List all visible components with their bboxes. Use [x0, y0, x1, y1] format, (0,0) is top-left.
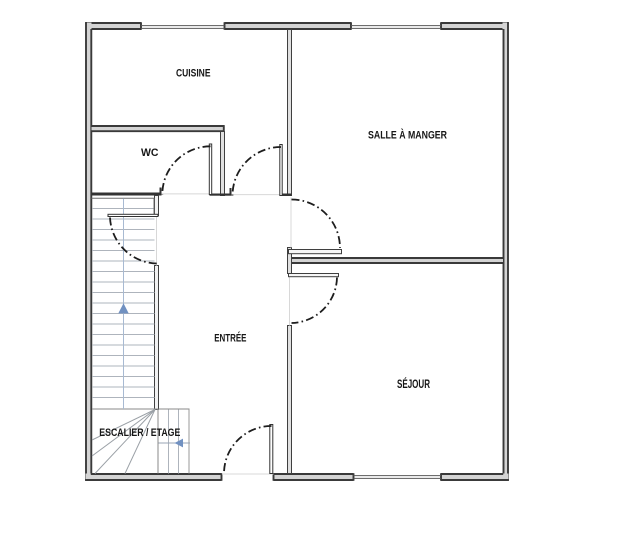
svg-text:WC: WC	[141, 147, 159, 159]
svg-text:SÉJOUR: SÉJOUR	[397, 376, 430, 391]
svg-text:ENTRÉE: ENTRÉE	[214, 331, 246, 344]
svg-text:ESCALIER / ETAGE: ESCALIER / ETAGE	[99, 427, 180, 439]
svg-text:CUISINE: CUISINE	[176, 67, 211, 79]
svg-text:SALLE À MANGER: SALLE À MANGER	[368, 129, 447, 142]
